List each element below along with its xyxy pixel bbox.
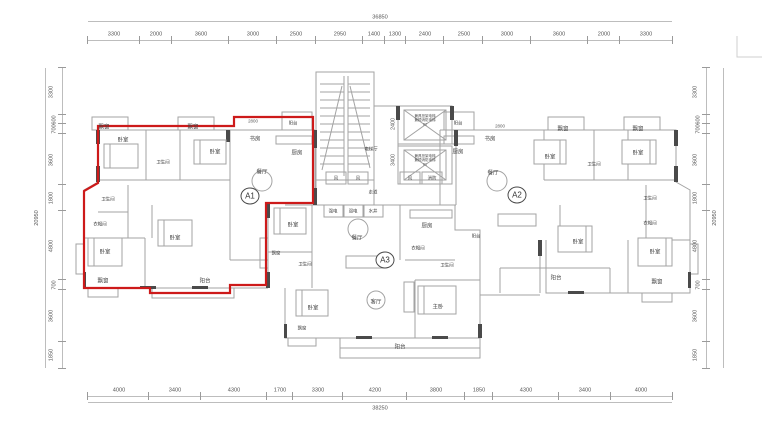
- room-label-kitchen: 厨房: [422, 223, 433, 229]
- room-label-living: 客厅: [371, 299, 382, 305]
- dim-total-left: 20950: [34, 68, 46, 368]
- dim-segment: 3600: [694, 134, 710, 186]
- room-label-bedroom: 卧室: [545, 154, 556, 160]
- room-label-corridor: 走道: [369, 190, 378, 195]
- room-label-bathroom: 卫生间: [587, 162, 600, 167]
- room-label-bay-window: 飘窗: [272, 251, 281, 256]
- frame-corner-mark: [737, 36, 762, 57]
- room-label-elevator-hall: 电梯厅: [364, 147, 377, 152]
- dim-segment: 3000: [229, 26, 277, 44]
- room-label-bathroom: 卫生间: [101, 197, 114, 202]
- room-label-dining: 餐厅: [257, 169, 268, 175]
- room-label-bay-window: 飘窗: [633, 126, 644, 132]
- dim-segment: 3600: [172, 26, 229, 44]
- dim-segment: 1400: [363, 26, 385, 44]
- room-label-bedroom: 卧室: [650, 249, 661, 255]
- dim-segment: 1850: [465, 384, 493, 400]
- dim-segment: 3600: [50, 134, 66, 186]
- dim-segment: 1800: [50, 185, 66, 211]
- dim-segment: 1300: [385, 26, 406, 44]
- dim-total-top-value: 36850: [372, 13, 388, 19]
- dim-segment: 4000: [611, 384, 672, 400]
- dim-segment: 3400: [149, 384, 201, 400]
- room-label-bedroom: 卧室: [118, 137, 129, 143]
- room-label-study: 书房: [250, 136, 261, 142]
- room-label-dining: 餐厅: [488, 170, 499, 176]
- dim-segment: 3600: [694, 290, 710, 342]
- room-label-bathroom: 卫生间: [156, 160, 169, 165]
- dim-segment: 3300: [50, 68, 66, 115]
- room-label-bay-window: 飘窗: [652, 279, 663, 285]
- room-label-cloakroom: 衣帽间: [93, 222, 106, 227]
- dim-segment: 4200: [343, 384, 407, 400]
- dim-segment: 3600: [50, 290, 66, 342]
- room-label-balcony: 阳台: [289, 121, 298, 126]
- dim-total-top: 36850: [88, 10, 672, 22]
- room-label-bay-window: 飘窗: [98, 278, 109, 284]
- room-label-bedroom: 卧室: [288, 222, 299, 228]
- room-label-bedroom: 卧室: [100, 249, 111, 255]
- room-label-bathroom: 卫生间: [643, 196, 656, 201]
- dim-segment: 4000: [88, 384, 149, 400]
- room-label-bay-window: 飘窗: [99, 124, 110, 130]
- room-label-bay-window: 飘窗: [298, 326, 307, 331]
- dim-total-bottom: 38250: [88, 402, 672, 414]
- room-label-cloakroom: 衣帽间: [643, 221, 656, 226]
- dim-segment: 2000: [140, 26, 172, 44]
- room-label-bay-window: 飘窗: [558, 126, 569, 132]
- dim-segment: 3300: [620, 26, 672, 44]
- dim-segment: 1800: [694, 185, 710, 211]
- room-label-master-bedroom: 主卧: [433, 304, 444, 310]
- room-label-kitchen: 厨房: [453, 149, 464, 155]
- dim-segment: 2950: [316, 26, 363, 44]
- dim-segment: 4300: [201, 384, 267, 400]
- inner-dim-2400: 2400: [390, 118, 396, 130]
- dim-total-right-value: 20950: [711, 210, 717, 226]
- inner-dim-2800: 2800: [248, 119, 258, 124]
- room-label-bay-window: 飘窗: [188, 124, 199, 130]
- room-label-weak-elec: 弱电: [349, 209, 358, 214]
- dim-total-left-value: 20950: [33, 210, 39, 226]
- room-label-vent: 风: [334, 176, 338, 181]
- floor-plan-drawing: [0, 0, 765, 423]
- inner-dim-3400: 3400: [390, 154, 396, 166]
- inner-dim-2800: 2800: [495, 124, 505, 129]
- dim-segment: 3000: [483, 26, 531, 44]
- room-label-vent: 风: [408, 176, 412, 181]
- dim-chain-bottom: 4000340043001700330042003800185043003400…: [88, 384, 672, 400]
- dim-segment: 1700: [267, 384, 293, 400]
- room-label-vent: 风: [356, 176, 360, 181]
- room-label-fire: 消防: [428, 176, 437, 181]
- unit-badge-a3: A3: [376, 252, 395, 269]
- room-label-balcony: 阳台: [395, 344, 406, 350]
- dim-total-right: 20950: [712, 68, 724, 368]
- dim-segment: 3300: [694, 68, 710, 115]
- dim-segment: 3600: [531, 26, 588, 44]
- room-label-bedroom: 卧室: [170, 235, 181, 241]
- dim-chain-right: 330060070036001800480070036001850: [694, 68, 710, 368]
- dim-segment: 3800: [407, 384, 465, 400]
- room-label-bathroom: 卫生间: [298, 262, 311, 267]
- dim-segment: 1850: [694, 342, 710, 368]
- dim-chain-left: 330060070036001800480070036001850: [50, 68, 66, 368]
- dim-segment: 2500: [444, 26, 484, 44]
- dim-chain-top: 3300200036003000250029501400130024002500…: [88, 26, 672, 44]
- dim-segment: 1850: [50, 342, 66, 368]
- dim-segment: 2400: [406, 26, 444, 44]
- room-label-bedroom: 卧室: [308, 305, 319, 311]
- room-label-cloakroom: 衣帽间: [411, 246, 424, 251]
- room-label-balcony: 阳台: [454, 121, 463, 126]
- room-label-balcony: 阳台: [472, 234, 481, 239]
- elevator-note-02: 兼具担架电梯 兼顾消防电梯 02: [415, 115, 436, 128]
- dim-segment: 4800: [694, 211, 710, 280]
- dim-segment: 3300: [293, 384, 343, 400]
- room-label-dining: 餐厅: [352, 235, 363, 241]
- room-label-study: 书房: [485, 136, 496, 142]
- dim-total-bottom-value: 38250: [372, 404, 388, 410]
- dim-segment: 2000: [588, 26, 620, 44]
- room-label-balcony: 阳台: [551, 275, 562, 281]
- room-label-bedroom: 卧室: [633, 150, 644, 156]
- dim-segment: 3400: [559, 384, 611, 400]
- room-label-kitchen: 厨房: [292, 150, 303, 156]
- room-label-balcony: 阳台: [200, 278, 211, 284]
- building-walls: [76, 72, 698, 358]
- room-label-bathroom: 卫生间: [440, 263, 453, 268]
- unit-badge-a1: A1: [241, 188, 260, 205]
- room-label-strong-elec: 强电: [329, 209, 338, 214]
- dim-segment: 2500: [277, 26, 317, 44]
- dim-segment: 4300: [493, 384, 559, 400]
- dim-segment: 4800: [50, 211, 66, 280]
- room-label-bedroom: 卧室: [573, 239, 584, 245]
- floorplan-canvas: 36850 3300200036003000250029501400130024…: [0, 0, 765, 423]
- unit-badge-a2: A2: [508, 187, 527, 204]
- furniture: [88, 140, 672, 316]
- room-label-water-shaft: 水井: [369, 209, 378, 214]
- room-label-bedroom: 卧室: [210, 149, 221, 155]
- elevator-note-01: 兼具担架电梯 兼顾消防电梯 01: [415, 155, 436, 168]
- dim-segment: 3300: [88, 26, 140, 44]
